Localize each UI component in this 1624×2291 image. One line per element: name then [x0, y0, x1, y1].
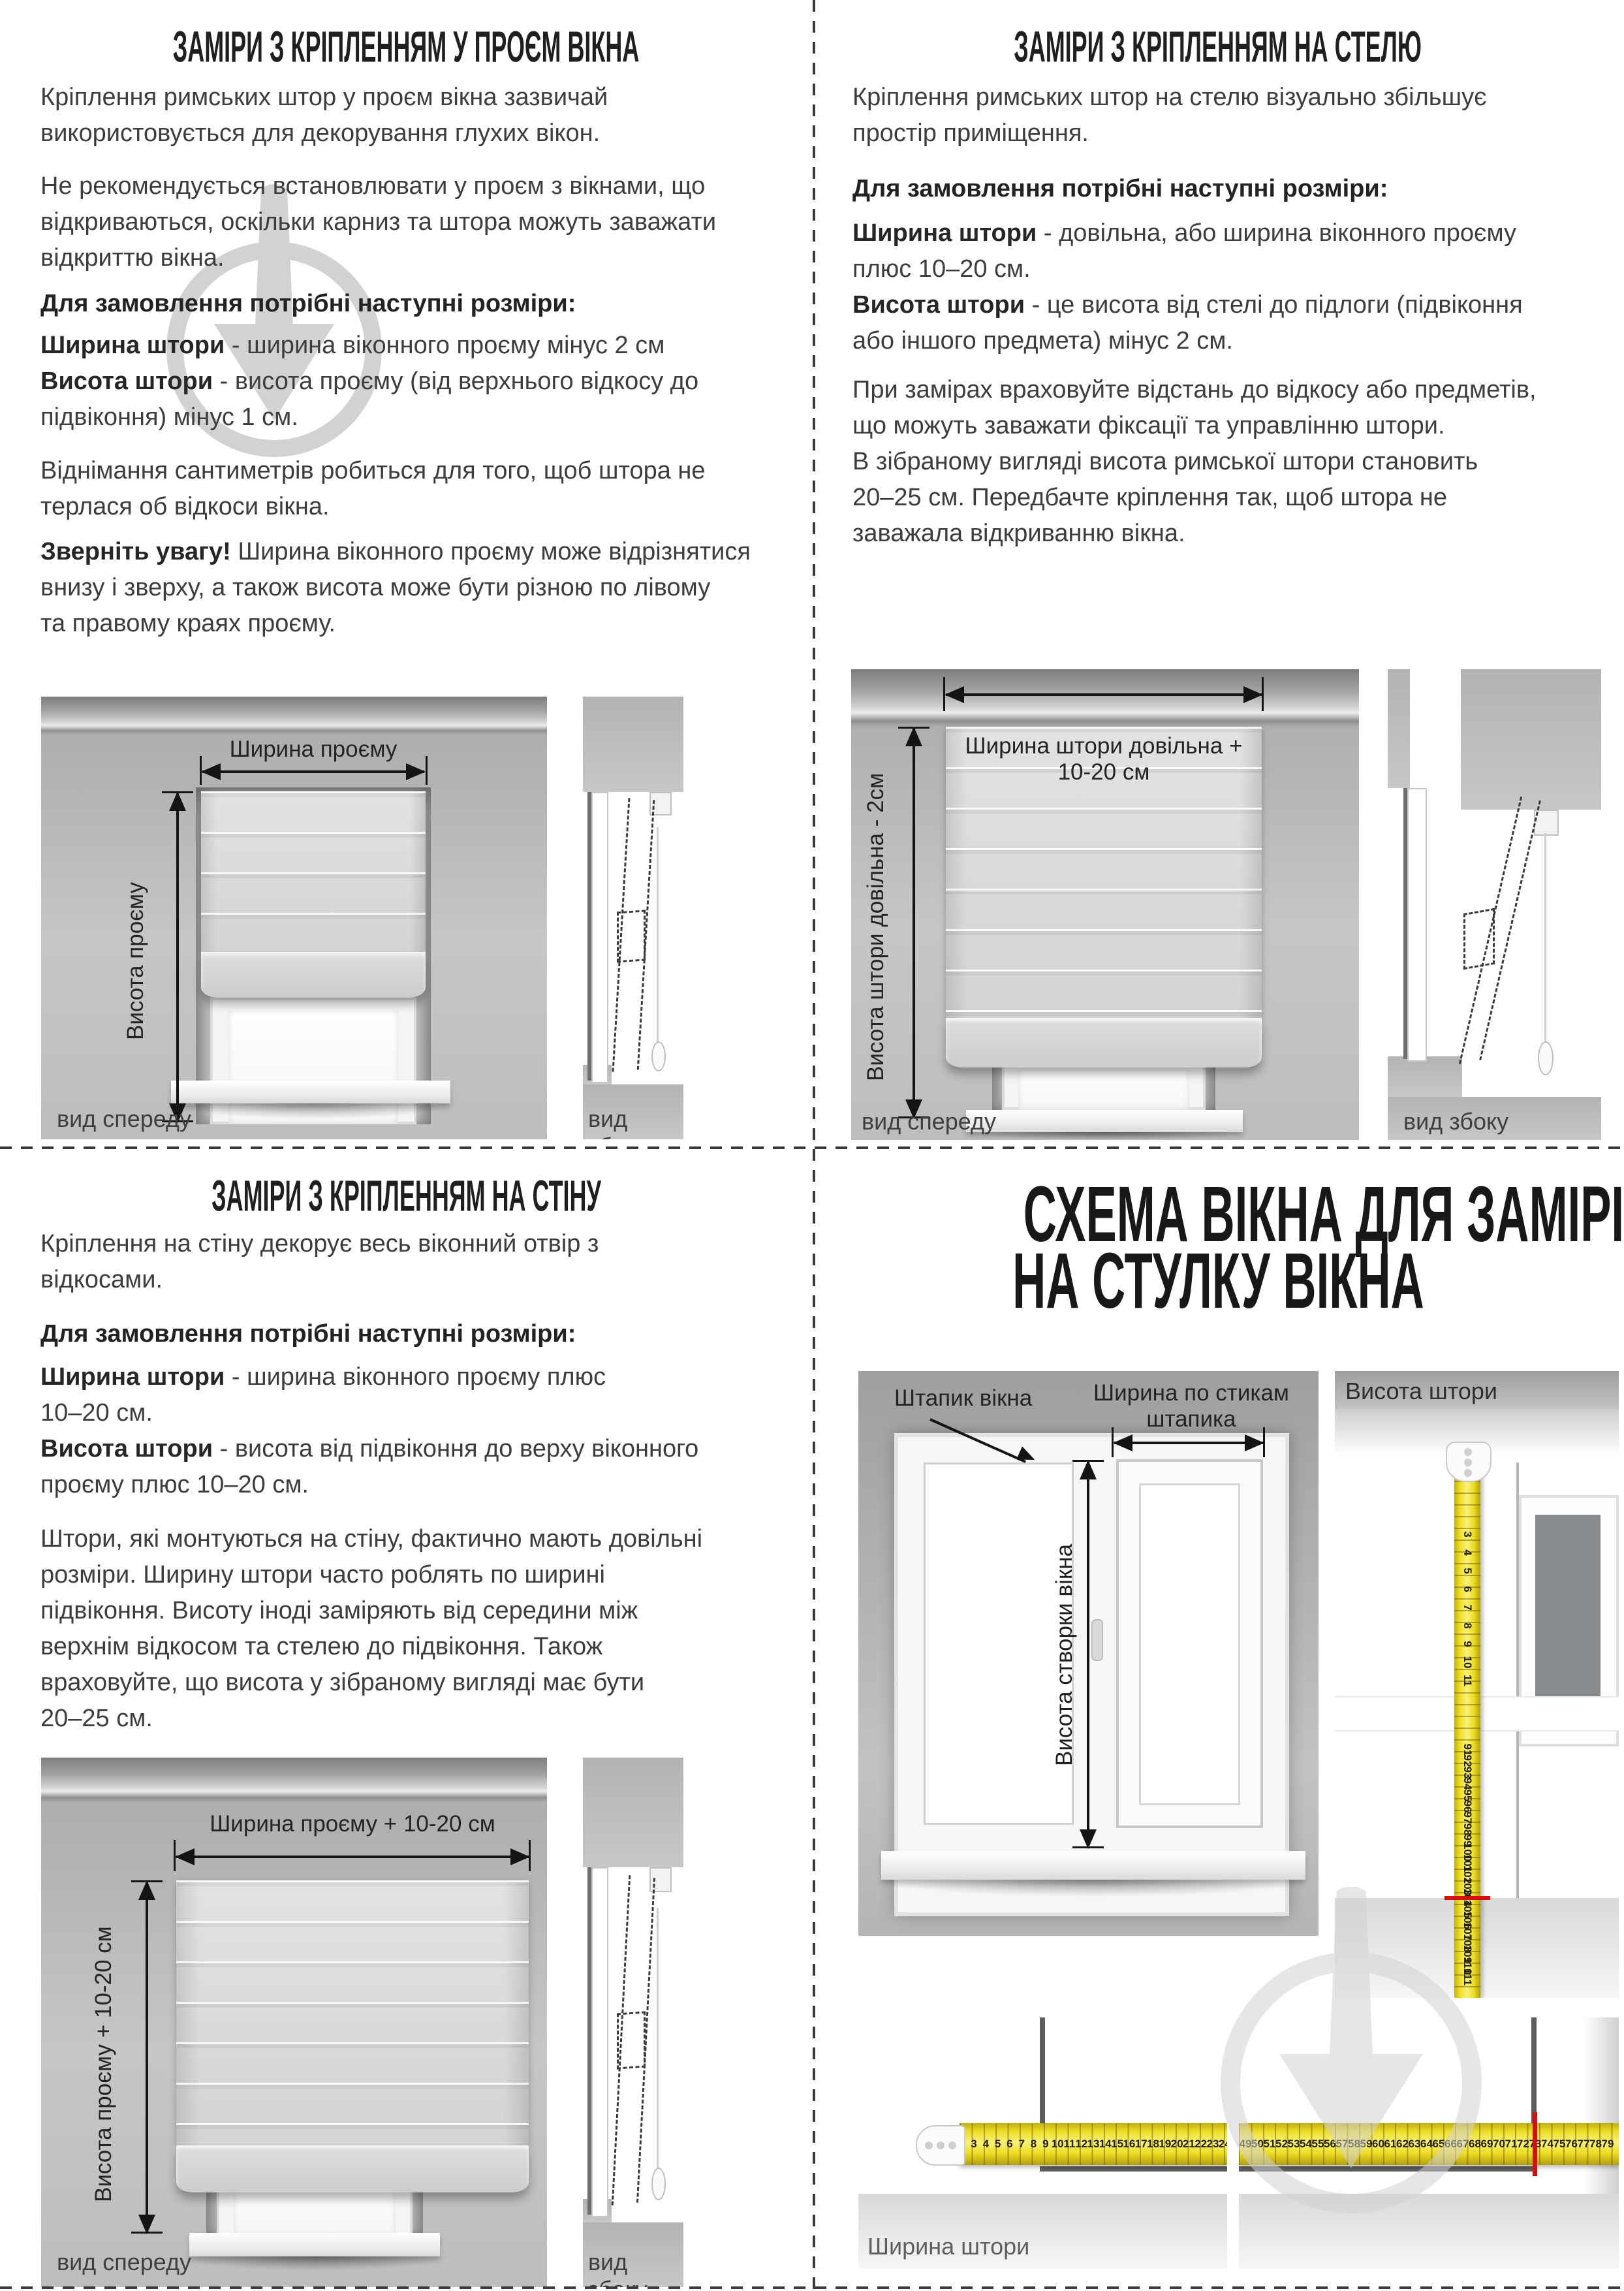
paragraph: Не рекомендується встановлювати у проєм … [40, 168, 716, 276]
arrow-tick [162, 791, 193, 793]
cord-weight [651, 2168, 666, 2200]
window-scheme-illustration: Штапик вікна Ширина по стикам штапика Ви… [858, 1371, 1319, 1936]
tape-number: 77 [1578, 2138, 1590, 2151]
tape-number: 23 [1207, 2138, 1219, 2151]
spec-width: Ширина штори - ширина віконного проєму п… [40, 1359, 606, 1431]
side-view-illustration: вид збоку [583, 1758, 683, 2287]
roller-cord [657, 1908, 659, 2188]
height-measuring-illustration: Висота штори 34567891011 919293949596979… [1335, 1371, 1619, 1998]
tape-number: 69 [1481, 2138, 1493, 2151]
sill-step [1388, 1056, 1462, 1097]
cornice [41, 697, 547, 735]
tape-number: 4 [983, 2138, 989, 2151]
tape-number: 22 [1195, 2138, 1207, 2151]
width-arrow [946, 693, 1262, 696]
tape-number: 15 [1111, 2138, 1123, 2151]
side-view-caption: вид збоку [1403, 1108, 1508, 1135]
tape-number: 9 [1042, 2138, 1048, 2151]
tape-number: 74 [1541, 2138, 1554, 2151]
width-arrow [202, 770, 424, 773]
bead-width-label: Ширина по стикам штапика [1074, 1380, 1309, 1432]
tape-number: 8 [1031, 2138, 1037, 2151]
tape-number: 76 [1565, 2138, 1578, 2151]
arrow-tick [1072, 1460, 1104, 1462]
order-heading: Для замовлення потрібні наступні розміри… [852, 171, 1388, 207]
bottom-cut-line [0, 2286, 1624, 2289]
wall-section-top [583, 1758, 683, 1867]
sill-shadow [871, 1880, 1315, 1897]
roller-cord [657, 827, 659, 1064]
windowsill [189, 2233, 440, 2256]
height-arrow-label: Висота проєму [123, 853, 149, 1069]
red-mark-73 [1533, 2112, 1537, 2176]
spec-height: Висота штори - висота проєму (від верхнь… [40, 364, 698, 435]
arrow-tick [200, 756, 202, 785]
frame-profile [591, 792, 608, 1083]
tape-number: 9 [1461, 1641, 1474, 1647]
tape-number: 95 [1461, 1789, 1474, 1801]
width-arrow-label: Ширина штори довільна + 10-20 см [946, 733, 1262, 785]
paragraph: Кріплення римських штор на стелю візуаль… [852, 80, 1486, 151]
spec-width: Ширина штори - довільна, або ширина віко… [852, 215, 1516, 287]
tape-number: 71 [1505, 2138, 1518, 2151]
side-view-caption: вид збоку [588, 2249, 683, 2287]
paragraph: Кріплення римських штор у проєм вікна за… [40, 80, 608, 151]
width-measuring-left-photo: 3456789101112131415161718192021222324 Ши… [858, 2017, 1227, 2269]
front-view-caption: вид спереду [57, 2249, 191, 2276]
tape-number: 97 [1461, 1812, 1474, 1824]
roman-blind-skirt [946, 1018, 1262, 1067]
sash-frame-vertical [1040, 2017, 1045, 2123]
tape-number: 5 [1461, 1568, 1474, 1573]
front-view-caption: вид спереду [57, 1105, 191, 1133]
arrow-tick [174, 1840, 176, 1871]
arrow-tick [426, 756, 428, 785]
sash-height-label: Висота створки вікна [1052, 1515, 1078, 1795]
sash-section-dashed [617, 909, 646, 962]
front-view-illustration: Ширина штори довільна + 10-20 см Висота … [851, 669, 1359, 1140]
window-handle [1091, 1619, 1103, 1661]
tape-end-hook [916, 2125, 965, 2166]
ceiling-section [1461, 669, 1601, 810]
cornice [41, 1758, 547, 1802]
height-arrow [176, 793, 179, 1122]
tape-number: 92 [1461, 1755, 1474, 1767]
arrow-tick [1262, 677, 1264, 711]
horizontal-cut-line [0, 1146, 1624, 1149]
tape-number: 7 [1018, 2138, 1024, 2151]
paragraph: Штори, які монтуються на стіну, фактично… [40, 1521, 702, 1737]
diagram-title-line2: НА СТУЛКУ ВІКНА [812, 1248, 1624, 1314]
cord-weight [1538, 1041, 1554, 1075]
arrow-tick [943, 677, 945, 711]
curtain-height-caption: Висота штори [1345, 1378, 1497, 1405]
spec-width: Ширина штори - ширина віконного проєму м… [40, 328, 664, 364]
tape-number: 98 [1461, 1823, 1474, 1835]
arrow-tick [131, 2232, 163, 2234]
tape-number: 21 [1183, 2138, 1195, 2151]
tape-number: 18 [1147, 2138, 1159, 2151]
roman-blind-skirt [176, 2145, 529, 2192]
tape-number: 4 [1461, 1549, 1474, 1555]
roman-blind [176, 1880, 529, 2145]
tape-number: 3 [1461, 1531, 1474, 1537]
tape-number: 17 [1135, 2138, 1148, 2151]
width-arrow-label: Ширина проєму + 10-20 см [176, 1811, 529, 1837]
tape-number: 6 [1007, 2138, 1012, 2151]
leaflet-page: ЗАМІРИ З КРІПЛЕННЯМ У ПРОЄМ ВІКНА Кріпле… [0, 0, 1624, 2291]
sash-section-dashed [1463, 908, 1495, 970]
tape-number: 11 [1461, 1675, 1474, 1686]
spec-term: Ширина штори [852, 219, 1037, 247]
wall-section-top [583, 697, 683, 792]
order-heading: Для замовлення потрібні наступні розміри… [40, 286, 576, 322]
roman-blind [201, 791, 426, 952]
spec-term: Висота штори [40, 1435, 213, 1462]
sash-frame-horizontal [1040, 2166, 1227, 2172]
tape-number: 78 [1589, 2138, 1602, 2151]
spec-term: Висота штори [40, 368, 213, 395]
note-term: Зверніть увагу! [40, 538, 231, 565]
spec-height: Висота штори - висота від підвіконня до … [40, 1431, 698, 1503]
roller-cord [1544, 833, 1546, 1068]
arrow-tick [1263, 1427, 1265, 1457]
horizontal-measuring-tape: 3456789101112131415161718192021222324 [960, 2123, 1227, 2165]
section-title: ЗАМІРИ З КРІПЛЕННЯМ НА СТІНУ [0, 1175, 812, 1218]
order-heading: Для замовлення потрібні наступні розміри… [40, 1316, 576, 1352]
height-arrow [913, 728, 915, 1118]
arrow-tick [1112, 1427, 1114, 1457]
paragraph: Віднімання сантиметрів робиться для того… [40, 453, 706, 525]
side-view-illustration: вид збоку [1388, 669, 1601, 1140]
cornice [851, 669, 1359, 727]
frame-profile [1407, 788, 1427, 1062]
wall-section-top-left [1388, 669, 1410, 788]
frame-profile [591, 1867, 608, 2217]
tape-number: 19 [1159, 2138, 1171, 2151]
section-title: ЗАМІРИ З КРІПЛЕННЯМ У ПРОЄМ ВІКНА [0, 26, 812, 69]
height-arrow-label: Висота проєму + 10-20 см [91, 1914, 117, 2215]
sash-frame-vertical [1531, 2017, 1537, 2123]
height-arrow-label: Висота штори довільна - 2см [863, 767, 889, 1087]
tape-number: 14 [1099, 2138, 1112, 2151]
tape-number: 3 [971, 2138, 976, 2151]
bead-width-arrow [1114, 1442, 1263, 1444]
arrow-tick [131, 1880, 163, 1882]
vertical-cut-line [813, 0, 815, 2291]
sill-shadow [956, 1132, 1253, 1140]
bead-label: Штапик вікна [894, 1385, 1064, 1412]
tape-number: 13 [1087, 2138, 1100, 2151]
spec-height: Висота штори - це висота від стелі до пі… [852, 287, 1523, 359]
front-view-illustration: Ширина проєму + 10-20 см Висота проєму +… [41, 1758, 547, 2287]
spec-term: Висота штори [852, 291, 1025, 319]
sash-height-arrow [1087, 1461, 1089, 1848]
tape-number: 72 [1517, 2138, 1529, 2151]
tape-bracket [1446, 1442, 1491, 1482]
spec-desc: - ширина віконного проєму мінус 2 см [225, 332, 664, 359]
tape-number: 20 [1171, 2138, 1183, 2151]
trowel-blade-icon [1279, 2054, 1423, 2168]
side-view-illustration: вид збоку [583, 697, 683, 1139]
trowel-logo-watermark [1221, 1952, 1482, 2213]
tape-number: 5 [995, 2138, 1001, 2151]
height-arrow [146, 1882, 148, 2233]
sill-shadow [162, 1103, 462, 1119]
note: Зверніть увагу! Ширина віконного проєму … [40, 534, 751, 642]
window-glass [1018, 1069, 1189, 1110]
tape-number: 12 [1075, 2138, 1087, 2151]
paragraph: При замірах враховуйте відстань до відко… [852, 372, 1537, 552]
tape-number: 11 [1063, 2138, 1075, 2151]
width-arrow [176, 1856, 529, 1858]
sash-section-dashed [617, 2011, 646, 2069]
section-title: ЗАМІРИ З КРІПЛЕННЯМ НА СТЕЛЮ [812, 26, 1624, 69]
tape-number: 75 [1554, 2138, 1566, 2151]
spec-term: Ширина штори [40, 332, 225, 359]
front-view-illustration: Ширина проєму Висота проєму вид спереду [41, 697, 547, 1139]
paragraph: Кріплення на стіну декорує весь віконний… [40, 1226, 599, 1298]
windowsill [881, 1851, 1305, 1880]
tape-number: 93 [1461, 1766, 1474, 1778]
tape-number: 10 [1052, 2138, 1064, 2151]
arrow-tick [1072, 1846, 1104, 1848]
tape-number: 79 [1602, 2138, 1614, 2151]
tape-number: 70 [1493, 2138, 1505, 2151]
curtain-width-caption: Ширина штори [867, 2233, 1029, 2260]
windowsill [966, 1110, 1243, 1132]
cord-weight [651, 1041, 666, 1071]
tape-number: 8 [1461, 1622, 1474, 1628]
spec-term: Ширина штори [40, 1363, 225, 1391]
tape-number: 10 [1461, 1656, 1474, 1669]
roman-blind-skirt [201, 952, 426, 998]
red-mark-104 [1444, 1896, 1490, 1900]
tape-number: 7 [1461, 1604, 1474, 1610]
tape-number: 16 [1123, 2138, 1135, 2151]
width-arrow-label: Ширина проєму [202, 736, 424, 763]
right-sash-glass [1139, 1483, 1240, 1805]
tape-number: 94 [1461, 1778, 1474, 1790]
sill-shadow [178, 2256, 452, 2271]
arrow-tick [529, 1840, 531, 1871]
front-view-caption: вид спереду [862, 1108, 996, 1135]
tape-number: 6 [1461, 1586, 1474, 1592]
window-glass-dark [1535, 1515, 1601, 1724]
windowsill [171, 1081, 450, 1103]
side-view-caption: вид збоку [588, 1105, 683, 1139]
arrow-tick [898, 727, 929, 729]
wall-edge-shade [1585, 2017, 1619, 2194]
